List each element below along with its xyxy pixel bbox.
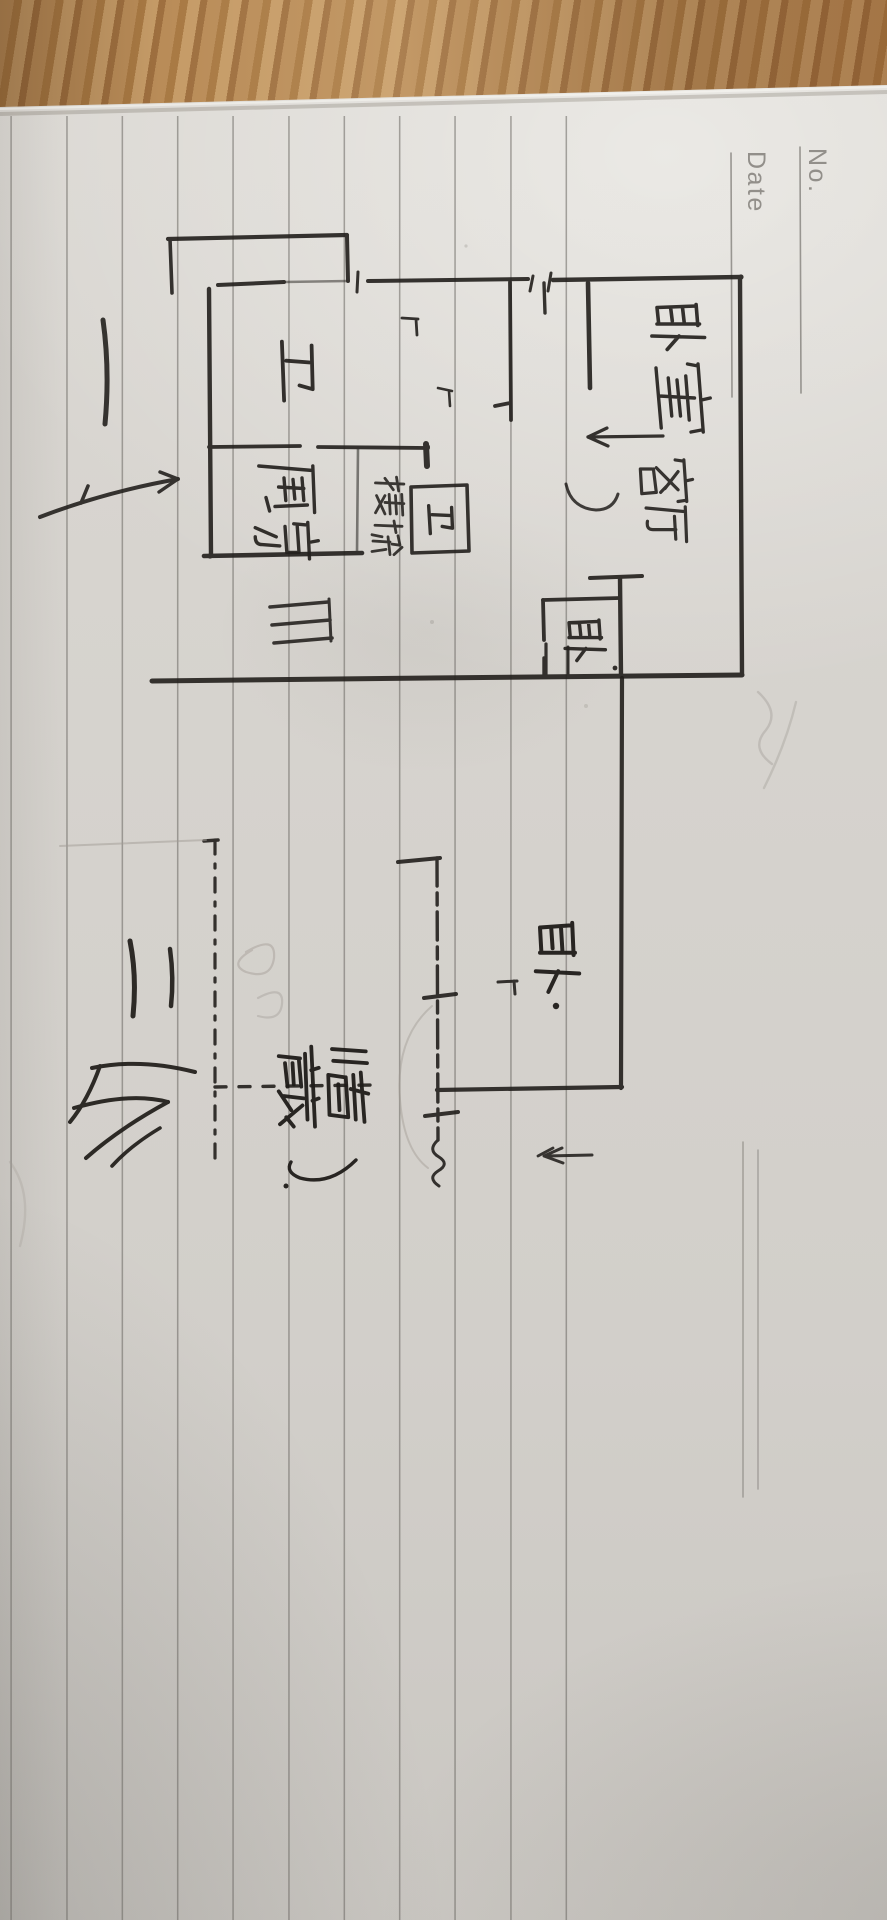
paper-edge (0, 87, 887, 114)
photo-of-notebook: No. Date (0, 0, 887, 1920)
floorplan-sketch: 卧室 客厅 卫 (0, 0, 887, 1920)
storage-label: 储藏室. (279, 1047, 369, 1189)
bedroom2-label: 卧. (536, 923, 579, 1009)
stairs-hatch (270, 599, 332, 643)
bathroom-label: 卫 (282, 342, 313, 401)
master-bedroom-label: 卧室 (652, 305, 710, 433)
small-bathroom-label: 卫 (429, 506, 453, 534)
paper: No. Date (0, 0, 887, 1920)
floor2-door-arrow (538, 1148, 592, 1163)
small-bathroom-box (411, 485, 469, 553)
floor2-label: 二层 (70, 941, 195, 1166)
living-room-label: 客厅 (640, 460, 692, 542)
kitchen-label: 厨房 (255, 466, 318, 559)
floor1-label: 一层 (40, 320, 178, 517)
floor1-walls (152, 235, 744, 681)
small-bedroom-label: 卧 (565, 620, 617, 670)
stairs-label: 楼梯 (372, 477, 404, 555)
door-swing-arc (566, 484, 618, 510)
entry-arrow (588, 428, 663, 446)
no-line (800, 147, 801, 393)
